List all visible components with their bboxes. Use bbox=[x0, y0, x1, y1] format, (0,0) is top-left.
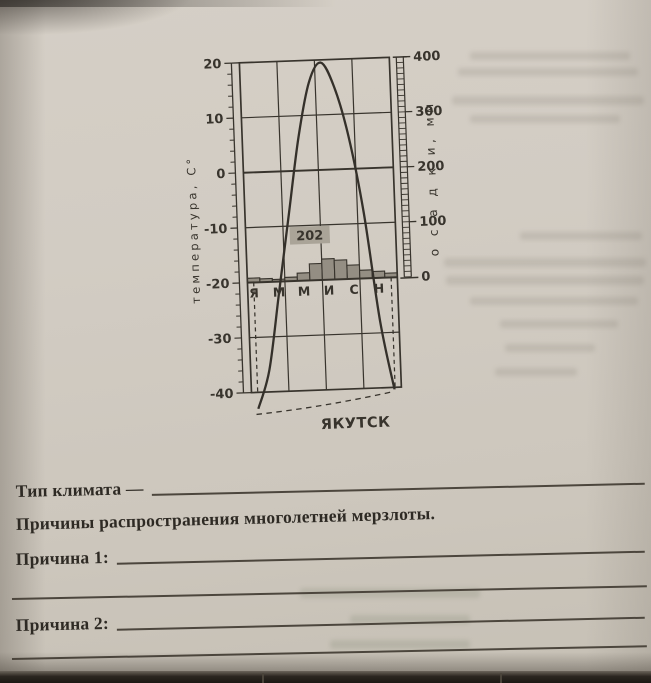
permafrost-heading: Причины распространения многолетней мерз… bbox=[16, 503, 436, 535]
reason1-blank-line bbox=[117, 550, 645, 565]
svg-text:С: С bbox=[349, 282, 359, 297]
svg-text:10: 10 bbox=[205, 112, 224, 128]
bleed-smudge bbox=[470, 297, 638, 305]
photo-top-shadow bbox=[0, 0, 420, 7]
climate-type-row: Тип климата — bbox=[15, 464, 644, 502]
reason1-row: Причина 1: bbox=[15, 532, 644, 570]
svg-text:И: И bbox=[324, 283, 335, 298]
reason1-label: Причина 1: bbox=[16, 547, 110, 570]
svg-text:0: 0 bbox=[216, 167, 226, 182]
svg-text:температура, С°: температура, С° bbox=[184, 155, 203, 304]
reason2-label: Причина 2: bbox=[16, 613, 110, 636]
svg-text:-10: -10 bbox=[204, 222, 228, 238]
table-edge-hint bbox=[500, 673, 502, 683]
bleed-smudge bbox=[505, 344, 595, 352]
photo-bottom-shadow bbox=[0, 652, 651, 671]
climograph-svg: 202ЯММИСН20100-10-20-30-404003002001000т… bbox=[176, 25, 463, 459]
svg-text:-20: -20 bbox=[206, 277, 230, 293]
bleed-smudge bbox=[446, 276, 644, 285]
svg-text:-30: -30 bbox=[208, 332, 232, 348]
svg-text:-40: -40 bbox=[210, 387, 234, 403]
svg-text:М: М bbox=[273, 284, 286, 299]
workbook-page: 202ЯММИСН20100-10-20-30-404003002001000т… bbox=[0, 0, 651, 683]
bleed-smudge bbox=[470, 52, 630, 60]
svg-text:0: 0 bbox=[421, 269, 431, 284]
svg-text:400: 400 bbox=[413, 49, 441, 65]
svg-text:М: М bbox=[298, 283, 311, 298]
bleed-smudge bbox=[520, 232, 642, 240]
bleed-smudge bbox=[500, 320, 618, 328]
climate-type-label: Тип климата — bbox=[16, 478, 144, 502]
svg-text:Н: Н bbox=[373, 281, 384, 296]
bleed-smudge bbox=[470, 115, 620, 123]
svg-text:202: 202 bbox=[296, 228, 324, 244]
climograph: 202ЯММИСН20100-10-20-30-404003002001000т… bbox=[176, 25, 463, 459]
svg-text:ЯКУТСК: ЯКУТСК bbox=[321, 415, 391, 434]
reason2-blank-line bbox=[117, 616, 645, 631]
svg-text:Я: Я bbox=[249, 285, 259, 300]
svg-text:20: 20 bbox=[203, 57, 222, 73]
climate-type-blank-line bbox=[152, 482, 645, 496]
table-edge-hint bbox=[262, 673, 264, 683]
bleed-smudge bbox=[444, 258, 646, 267]
svg-text:о с а д к и, мм: о с а д к и, мм bbox=[422, 99, 442, 256]
photo-bottom-edge bbox=[0, 671, 651, 683]
bleed-smudge bbox=[458, 68, 638, 76]
bleed-smudge bbox=[495, 368, 577, 376]
bleed-smudge bbox=[452, 96, 644, 105]
